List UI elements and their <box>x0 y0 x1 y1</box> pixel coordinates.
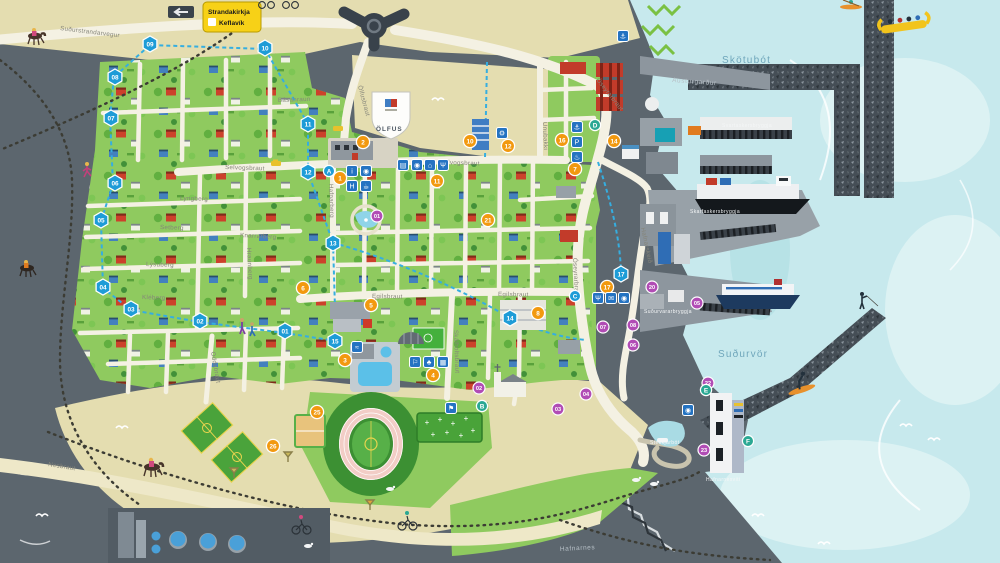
route-marker-03[interactable]: 03 <box>124 301 138 317</box>
poi-marker-number: 12 <box>504 143 512 150</box>
poi-marker-17[interactable]: 17 <box>600 280 613 293</box>
route-marker-number: 01 <box>281 328 289 335</box>
info-marker-04[interactable]: 04 <box>580 388 592 400</box>
poi-marker-number: 11 <box>434 178 441 185</box>
svg-text:≈: ≈ <box>355 345 359 352</box>
info-marker-05[interactable]: 05 <box>691 297 703 309</box>
poi-marker-number: 25 <box>313 409 321 416</box>
letter-marker-b[interactable]: B <box>476 400 487 411</box>
svg-text:▤: ▤ <box>400 163 407 170</box>
fish-farm <box>108 508 330 563</box>
label-skarfaskersbryggja: Skarfaskersbryggja <box>690 209 740 215</box>
poi-marker-number: 5 <box>369 302 373 309</box>
letter-marker-c[interactable]: C <box>569 290 580 301</box>
route-marker-number: 08 <box>111 74 119 81</box>
town-map: ++++ ++++ <box>0 0 1000 563</box>
anchor-icon[interactable]: ⚓ <box>572 122 583 133</box>
poi-marker-number: 1 <box>338 175 342 182</box>
poi-marker-6[interactable]: 6 <box>296 281 309 294</box>
route-marker-number: 09 <box>146 41 154 48</box>
harbour-crane <box>688 126 701 135</box>
info-marker-number: 20 <box>649 285 655 291</box>
poi-marker-5[interactable]: 5 <box>364 298 377 311</box>
svg-text:Ψ: Ψ <box>595 296 601 303</box>
info-marker-07[interactable]: 07 <box>597 321 609 333</box>
hot-tub-icon[interactable]: ♨ <box>572 152 583 163</box>
svg-text:◉: ◉ <box>685 408 691 415</box>
letter-marker-f[interactable]: F <box>742 435 753 446</box>
label-unubakki: Unubakki <box>541 122 549 150</box>
route-marker-15[interactable]: 15 <box>328 333 342 349</box>
svg-text:⚐: ⚐ <box>412 359 418 367</box>
label-kl-berg: Kléberg <box>142 294 166 302</box>
route-marker-number: 15 <box>331 338 339 345</box>
route-marker-09[interactable]: 09 <box>143 36 157 52</box>
restaurant-icon[interactable]: Ψ <box>438 160 449 171</box>
letter-marker-letter: C <box>573 293 578 300</box>
poi-marker-12[interactable]: 12 <box>501 139 514 152</box>
lookout-icon[interactable]: ◉ <box>619 293 630 304</box>
label-sk-tub-t: Skötubót <box>722 55 771 66</box>
svg-text:+: + <box>451 419 456 428</box>
label-l-suberg: Lýsuberg <box>146 261 174 269</box>
route-marker-14[interactable]: 14 <box>503 310 517 326</box>
poi-marker-4[interactable]: 4 <box>426 368 439 381</box>
info-marker-23[interactable]: 23 <box>698 444 710 456</box>
letter-marker-letter: F <box>746 438 750 445</box>
dining-icon[interactable]: Ψ <box>593 293 604 304</box>
svg-text:✉: ✉ <box>608 296 614 303</box>
svg-text:+: + <box>471 426 476 435</box>
route-marker-number: 05 <box>97 217 105 224</box>
photo-spot-icon[interactable]: ◉ <box>683 405 694 416</box>
info-marker-02[interactable]: 02 <box>473 382 485 394</box>
beach-volleyball-court <box>295 415 325 447</box>
svg-text:+: + <box>459 431 464 440</box>
route-marker-07[interactable]: 07 <box>104 110 118 126</box>
route-marker-11[interactable]: 11 <box>301 116 315 132</box>
cemetery: ++++ ++++ <box>417 413 482 442</box>
letter-marker-d[interactable]: D <box>589 119 600 130</box>
svg-text:P: P <box>575 140 580 147</box>
route-marker-01[interactable]: 01 <box>278 323 292 339</box>
letter-marker-letter: B <box>480 403 485 410</box>
poi-marker-number: 14 <box>610 138 618 145</box>
info-icon[interactable]: i <box>347 166 358 177</box>
label-su-urv-r: Suðurvör <box>718 348 768 360</box>
sign-line2: Keflavík <box>219 20 245 27</box>
route-marker-13[interactable]: 13 <box>326 235 340 251</box>
info-marker-number: 06 <box>630 343 636 349</box>
route-marker-number: 14 <box>506 315 514 322</box>
svg-text:+: + <box>438 415 443 424</box>
route-marker-number: 10 <box>261 45 269 52</box>
info-marker-01[interactable]: 01 <box>371 210 383 222</box>
poi-marker-11[interactable]: 11 <box>430 174 443 187</box>
poi-marker-number: 16 <box>558 137 566 144</box>
poi-marker-1[interactable]: 1 <box>333 171 346 184</box>
picnic-icon[interactable]: ▦ <box>438 357 449 368</box>
poi-marker-number: 6 <box>301 285 305 292</box>
route-marker-04[interactable]: 04 <box>96 279 110 295</box>
museum-icon[interactable]: ▤ <box>398 160 409 171</box>
direction-sign <box>168 6 194 18</box>
poi-marker-25[interactable]: 25 <box>310 405 323 418</box>
route-marker-08[interactable]: 08 <box>108 69 122 85</box>
viewpoint-icon[interactable]: ◉ <box>361 166 372 177</box>
route-marker-number: 06 <box>111 180 119 187</box>
label-b-sahraun: Básahraun <box>278 96 311 104</box>
route-marker-number: 03 <box>127 306 135 313</box>
route-marker-number: 04 <box>99 284 107 291</box>
poi-marker-number: 26 <box>269 443 277 450</box>
info-marker-08[interactable]: 08 <box>627 319 639 331</box>
cabin-icon[interactable]: ⌂ <box>425 160 436 171</box>
label-lyngberg: Lyngberg <box>180 195 208 203</box>
road-sign: Strandakirkja Keflavík <box>203 2 261 32</box>
info-marker-number: 23 <box>701 448 707 454</box>
post-icon[interactable]: ✉ <box>606 293 617 304</box>
poi-marker-14[interactable]: 14 <box>607 134 620 147</box>
info-marker-number: 01 <box>374 214 380 220</box>
route-marker-06[interactable]: 06 <box>108 175 122 191</box>
info-marker-number: 07 <box>600 325 606 331</box>
label-egilsbraut: Egilsbraut <box>372 293 403 301</box>
label-stekkjarb-t: Stekkjarbót <box>650 440 680 446</box>
svg-text:◉: ◉ <box>414 163 420 170</box>
route-marker-10[interactable]: 10 <box>258 40 272 56</box>
info-marker-number: 02 <box>476 386 482 392</box>
route-marker-number: 13 <box>329 240 337 247</box>
svg-text:♣: ♣ <box>427 360 432 367</box>
route-marker-12[interactable]: 12 <box>301 164 315 180</box>
route-marker-02[interactable]: 02 <box>193 313 207 329</box>
poi-marker-2[interactable]: 2 <box>356 135 369 148</box>
info-marker-20[interactable]: 20 <box>646 281 658 293</box>
label-setberg: Setberg <box>160 224 184 232</box>
label-su-urvararbryggja: Suðurvararbryggja <box>644 308 692 315</box>
workshop-icon[interactable]: ⚙ <box>497 128 508 139</box>
svg-text:◉: ◉ <box>363 169 369 176</box>
park-icon[interactable]: ♣ <box>424 357 435 368</box>
poi-marker-number: 4 <box>431 372 435 379</box>
svg-text:Ψ: Ψ <box>440 163 446 170</box>
route-marker-number: 02 <box>196 318 204 325</box>
poi-marker-number: 2 <box>361 139 365 146</box>
poi-marker-3[interactable]: 3 <box>338 353 351 366</box>
letter-marker-a[interactable]: A <box>323 165 334 176</box>
poi-marker-21[interactable]: 21 <box>481 213 494 226</box>
cafe-icon[interactable]: ☕ <box>361 181 372 192</box>
info-marker-number: 04 <box>583 392 590 398</box>
svg-text:⚑: ⚑ <box>448 405 454 413</box>
label-svartaskersbryggja: Svartaskersbryggja <box>722 123 772 129</box>
letter-marker-letter: A <box>327 168 332 175</box>
svg-text:▦: ▦ <box>440 360 447 367</box>
route-marker-05[interactable]: 05 <box>94 212 108 228</box>
info-marker-number: 05 <box>694 301 700 307</box>
route-marker-number: 11 <box>305 121 312 128</box>
poi-marker-number: 17 <box>603 284 611 291</box>
svg-text:+: + <box>431 430 436 439</box>
poi-marker-8[interactable]: 8 <box>531 306 544 319</box>
letter-marker-letter: D <box>593 122 598 129</box>
route-marker-17[interactable]: 17 <box>614 266 628 282</box>
poi-marker-7[interactable]: 7 <box>568 162 581 175</box>
label-hafnarnesviti: Hafnarnesviti <box>706 477 740 483</box>
golf-icon[interactable]: ⚑ <box>446 403 457 414</box>
swimming-icon[interactable]: ≈ <box>352 342 363 353</box>
poi-marker-number: 10 <box>466 138 474 145</box>
crest-label: ÖLFUS <box>376 124 403 133</box>
svg-text:+: + <box>425 418 430 427</box>
letter-marker-letter: E <box>704 387 709 394</box>
poi-marker-26[interactable]: 26 <box>266 439 279 452</box>
camera-icon[interactable]: ◉ <box>412 160 423 171</box>
svg-text:H: H <box>349 184 354 191</box>
svg-text:⚙: ⚙ <box>499 130 505 138</box>
svg-text:◉: ◉ <box>621 296 627 303</box>
poi-marker-number: 3 <box>343 357 347 364</box>
info-marker-number: 03 <box>555 407 561 413</box>
info-marker-03[interactable]: 03 <box>552 403 564 415</box>
map-canvas[interactable]: ++++ ++++ <box>0 0 1000 563</box>
label-egilsbraut: Egilsbraut <box>498 291 529 299</box>
marina-icon[interactable]: ⚓ <box>618 31 629 42</box>
label-hafnarberg: Hafnarberg <box>327 184 335 218</box>
poi-marker-10[interactable]: 10 <box>463 134 476 147</box>
hotel-icon[interactable]: H <box>347 181 358 192</box>
svg-text:☕: ☕ <box>363 183 369 191</box>
route-marker-number: 17 <box>617 271 625 278</box>
info-marker-06[interactable]: 06 <box>627 339 639 351</box>
parking-icon[interactable]: P <box>572 137 583 148</box>
svg-text:+: + <box>445 428 450 437</box>
sign-line1: Strandakirkja <box>208 9 250 16</box>
poi-marker-number: 8 <box>536 310 540 317</box>
svg-text:⌂: ⌂ <box>428 163 432 170</box>
route-marker-number: 07 <box>107 115 115 122</box>
yellow-car-2 <box>333 126 343 131</box>
info-marker-number: 08 <box>630 323 636 329</box>
route-marker-number: 12 <box>304 169 312 176</box>
poi-marker-16[interactable]: 16 <box>555 133 568 146</box>
label-selvogsbraut: Selvogsbraut <box>225 164 265 172</box>
svg-text:♨: ♨ <box>574 154 580 162</box>
poi-marker-number: 7 <box>573 166 577 173</box>
svg-text:⚓: ⚓ <box>574 125 580 132</box>
letter-marker-e[interactable]: E <box>700 384 711 395</box>
playground-icon[interactable]: ⚐ <box>410 357 421 368</box>
svg-text:+: + <box>464 414 469 423</box>
poi-marker-number: 21 <box>484 217 492 224</box>
svg-text:⚓: ⚓ <box>620 34 626 41</box>
